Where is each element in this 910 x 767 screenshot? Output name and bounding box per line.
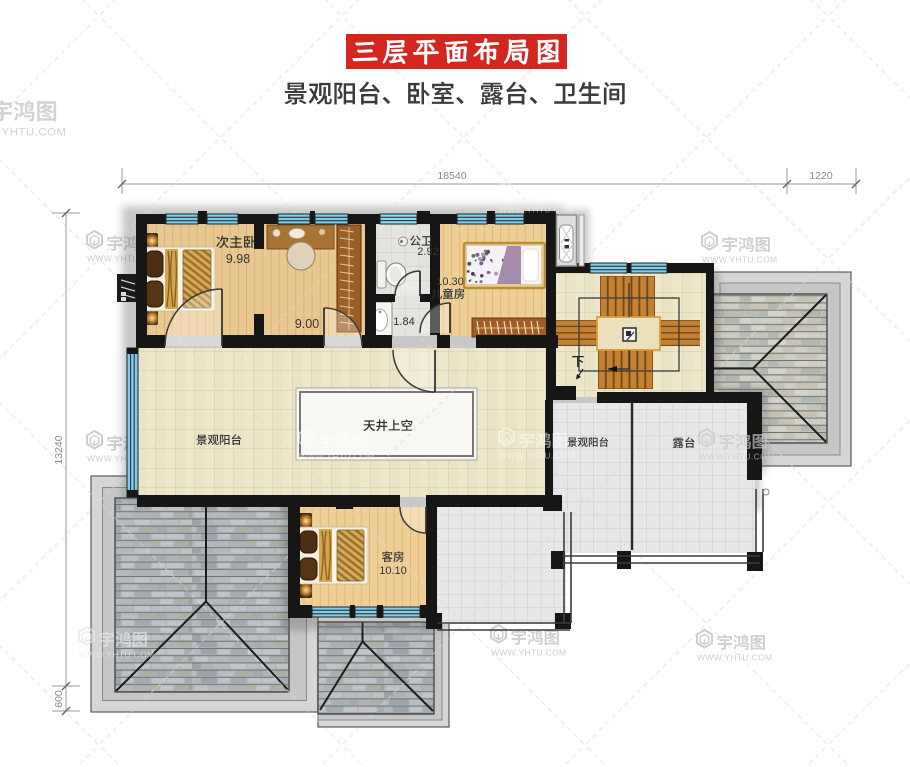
svg-text:10.10: 10.10 xyxy=(379,565,407,577)
svg-text:10.30: 10.30 xyxy=(436,276,464,288)
svg-text:13240: 13240 xyxy=(53,435,65,464)
svg-text:9.98: 9.98 xyxy=(226,252,250,266)
svg-text:9.00: 9.00 xyxy=(295,317,319,331)
svg-text:18540: 18540 xyxy=(437,170,466,182)
svg-text:1.84: 1.84 xyxy=(393,316,414,328)
svg-text:2.92: 2.92 xyxy=(417,246,438,258)
svg-text:600: 600 xyxy=(53,690,65,708)
svg-text:1220: 1220 xyxy=(809,170,833,182)
